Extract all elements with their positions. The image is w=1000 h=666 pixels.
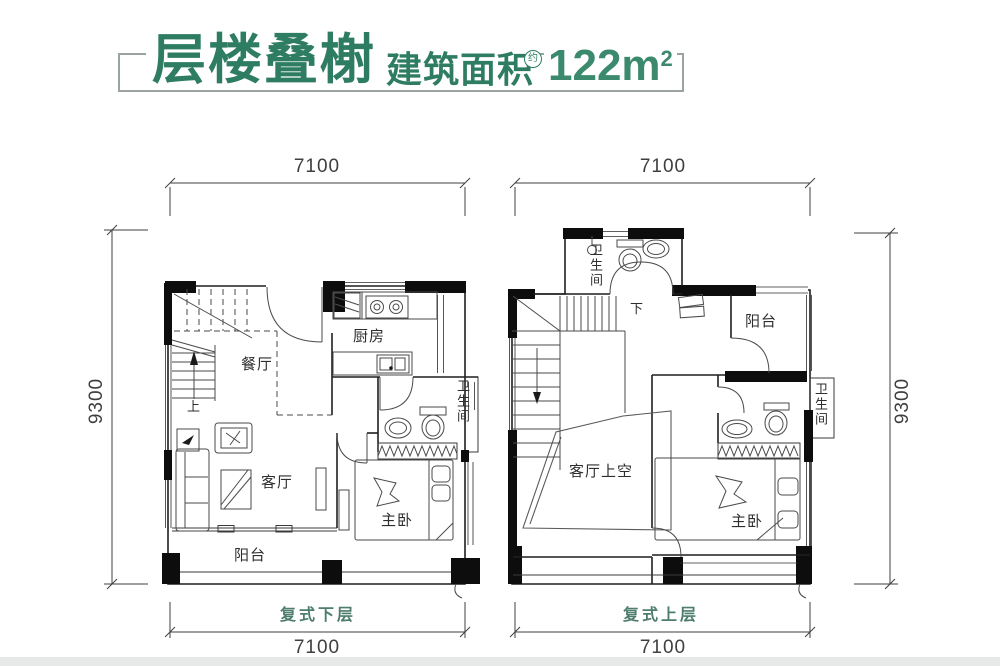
dresser-icon xyxy=(339,490,349,530)
area-caption: 建筑面积 xyxy=(382,50,538,90)
sofa-icon xyxy=(176,449,209,531)
dimension-lines xyxy=(104,178,898,638)
toilet-icon xyxy=(617,240,643,247)
room-label-bathroom-right: 卫生间 xyxy=(814,382,827,427)
room-label-kitchen: 厨房 xyxy=(353,329,385,346)
floor-name-lower: 复式下层 xyxy=(280,601,356,625)
toilet-icon xyxy=(764,403,789,410)
stairs-lower xyxy=(172,294,252,401)
room-label-bathroom-lower: 卫生间 xyxy=(456,379,469,424)
upper-plan-drawing xyxy=(508,228,834,598)
basin-icon xyxy=(385,418,411,438)
dim-left-lower: 9300 xyxy=(86,371,108,431)
page-title: 层楼叠榭 xyxy=(146,31,382,90)
bathroom-fixtures-lower xyxy=(385,407,446,439)
stair-label-up: 上 xyxy=(187,400,201,414)
room-label-bathroom-top: 卫生间 xyxy=(589,243,602,288)
room-label-dining: 餐厅 xyxy=(241,357,273,374)
toilet-icon xyxy=(420,407,446,415)
tv-cabinet-icon xyxy=(316,468,326,510)
room-label-balcony-upper: 阳台 xyxy=(745,314,777,331)
dim-top-lower: 7100 xyxy=(294,156,340,178)
dim-top-upper: 7100 xyxy=(640,156,686,178)
pillow-icon xyxy=(432,485,450,501)
dim-bottom-upper: 7100 xyxy=(640,637,686,659)
drain-icon xyxy=(455,584,462,598)
room-label-master-upper: 主卧 xyxy=(731,514,763,531)
bed-upper xyxy=(655,458,800,540)
footer-strip xyxy=(0,657,1000,666)
drain-icon xyxy=(799,584,806,598)
ac-unit-icon xyxy=(678,294,704,317)
stove-icon xyxy=(366,296,408,318)
room-label-balcony-lower: 阳台 xyxy=(234,548,266,565)
stair-label-down: 下 xyxy=(630,302,644,316)
floorplan-artwork xyxy=(0,0,1000,666)
pillow-icon xyxy=(778,478,798,495)
rug-icon xyxy=(221,470,251,509)
living-room-furniture xyxy=(176,423,252,531)
basin-icon xyxy=(643,240,669,258)
down-arrow xyxy=(533,392,541,404)
area-value: 122m2 xyxy=(544,42,677,90)
room-label-living-void: 客厅上空 xyxy=(569,464,633,481)
approx-badge: 约 xyxy=(524,50,542,68)
area-exponent: 2 xyxy=(661,46,673,71)
dim-bottom-lower: 7100 xyxy=(294,637,340,659)
stairs-upper xyxy=(513,296,616,470)
area-number: 122m xyxy=(548,41,661,90)
room-label-living: 客厅 xyxy=(261,475,293,492)
bathroom-fixtures-right xyxy=(722,403,789,438)
floorplan-page: 层楼叠榭 建筑面积 约 122m2 餐厅 厨房 卫生间 客厅 主卧 阳台 上 卫… xyxy=(0,0,1000,666)
lower-plan-drawing xyxy=(162,280,480,598)
dim-right-upper: 9300 xyxy=(892,371,914,431)
floor-name-upper: 复式上层 xyxy=(623,601,699,625)
pillow-icon xyxy=(432,466,450,482)
room-label-master-lower: 主卧 xyxy=(381,513,413,530)
